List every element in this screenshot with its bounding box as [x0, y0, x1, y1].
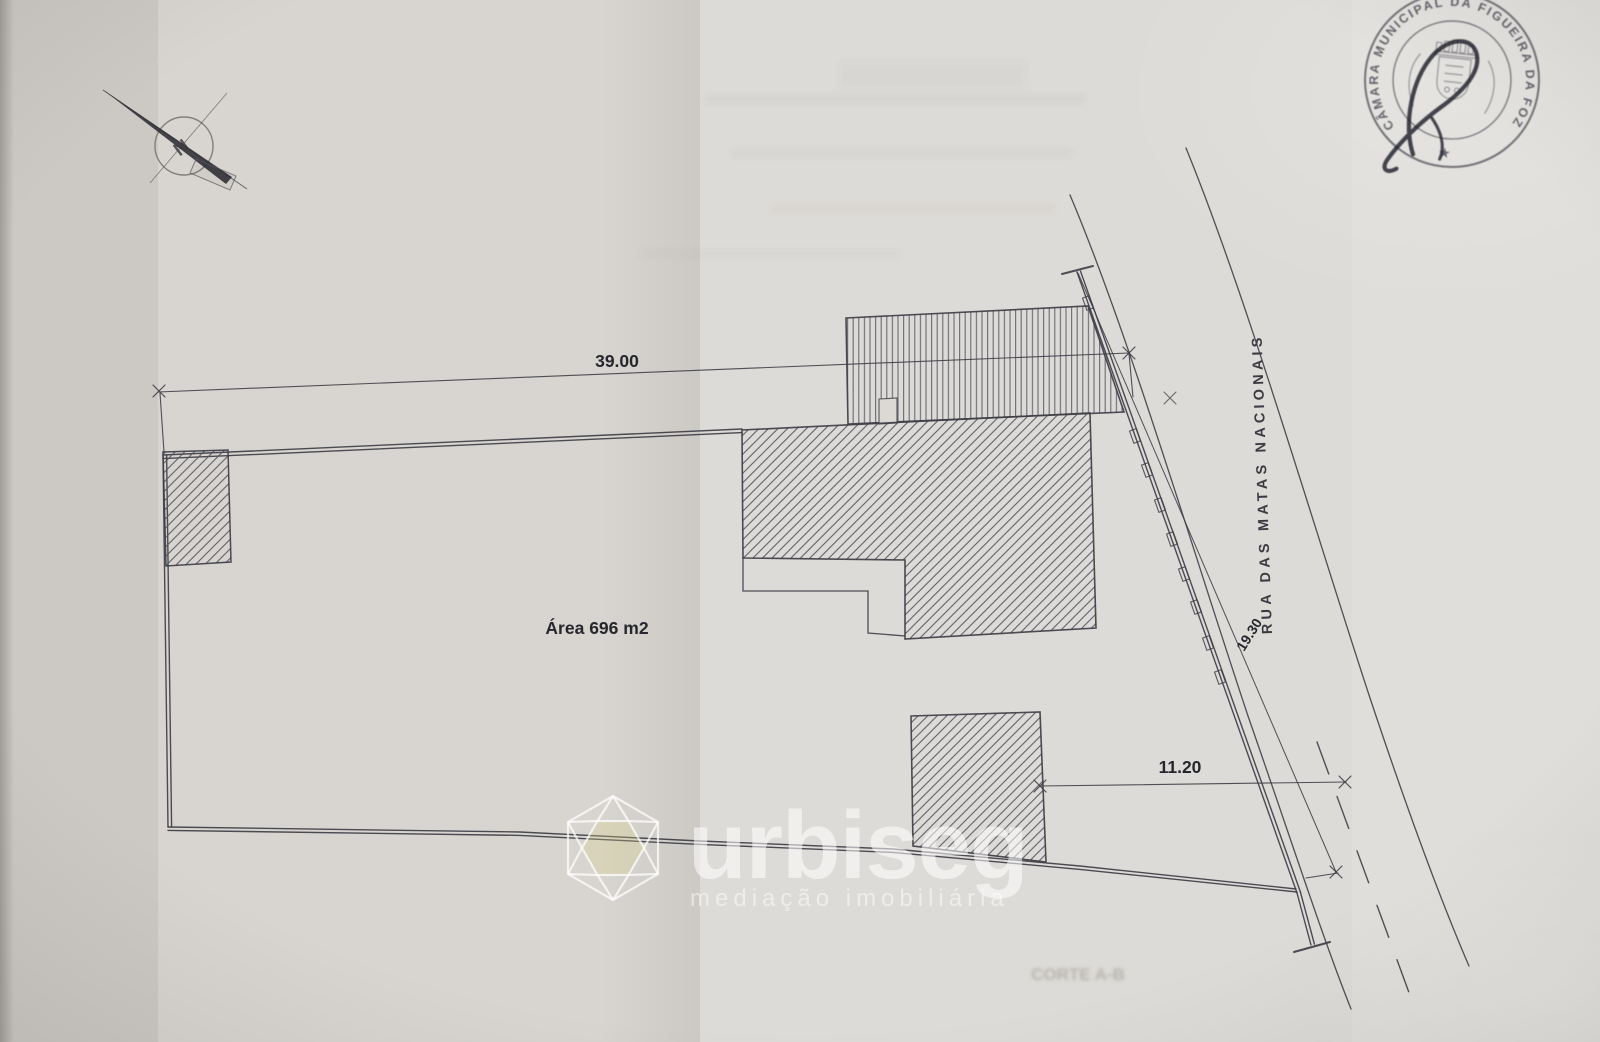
dim-label-39: 39.00 [595, 351, 639, 371]
watermark-brand: urbiseg [688, 792, 1028, 899]
site-plan-svg: CORTE A-B N [0, 0, 1600, 1042]
dim-label-11-20: 11.20 [1159, 757, 1202, 777]
ghost-section-text: CORTE A-B [1031, 965, 1125, 984]
scanned-site-plan-page: CORTE A-B N [0, 0, 1600, 1042]
area-label: Área 696 m2 [545, 617, 648, 638]
watermark-tagline: mediação imobiliária [690, 885, 1009, 912]
building-door-notch [879, 398, 897, 424]
building-left-annex [163, 450, 231, 566]
ghost-section-label: CORTE A-B [1031, 965, 1125, 984]
